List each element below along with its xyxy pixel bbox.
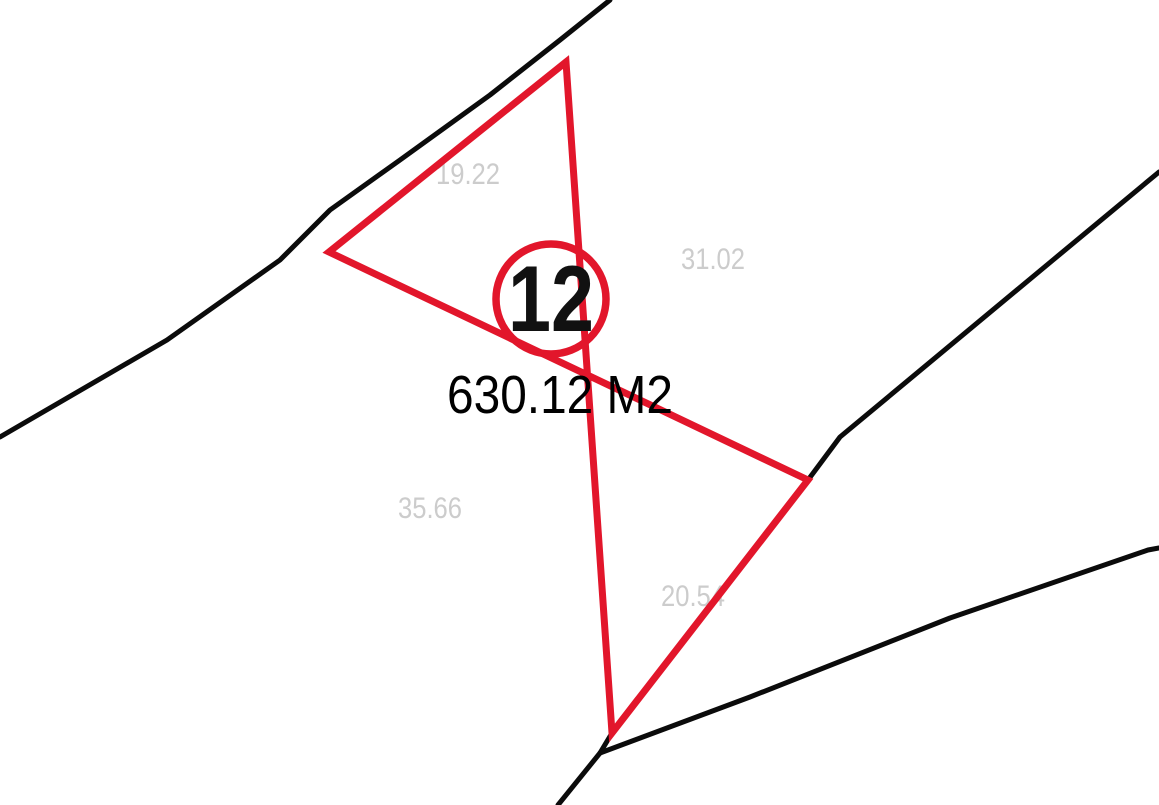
dimension-label-southwest: 35.66 [398,492,462,525]
dimension-label-northeast: 31.02 [681,243,745,276]
boundary-line-southeast [600,548,1159,753]
cadastral-plot-map: 19.22 31.02 35.66 20.54 12 630.12 M2 [0,0,1159,805]
boundary-line-east [808,172,1159,480]
boundary-line-south [558,733,612,805]
area-label: 630.12 M2 [447,365,673,425]
cadastral-svg: 19.22 31.02 35.66 20.54 12 630.12 M2 [0,0,1159,805]
lot-number: 12 [508,246,594,351]
